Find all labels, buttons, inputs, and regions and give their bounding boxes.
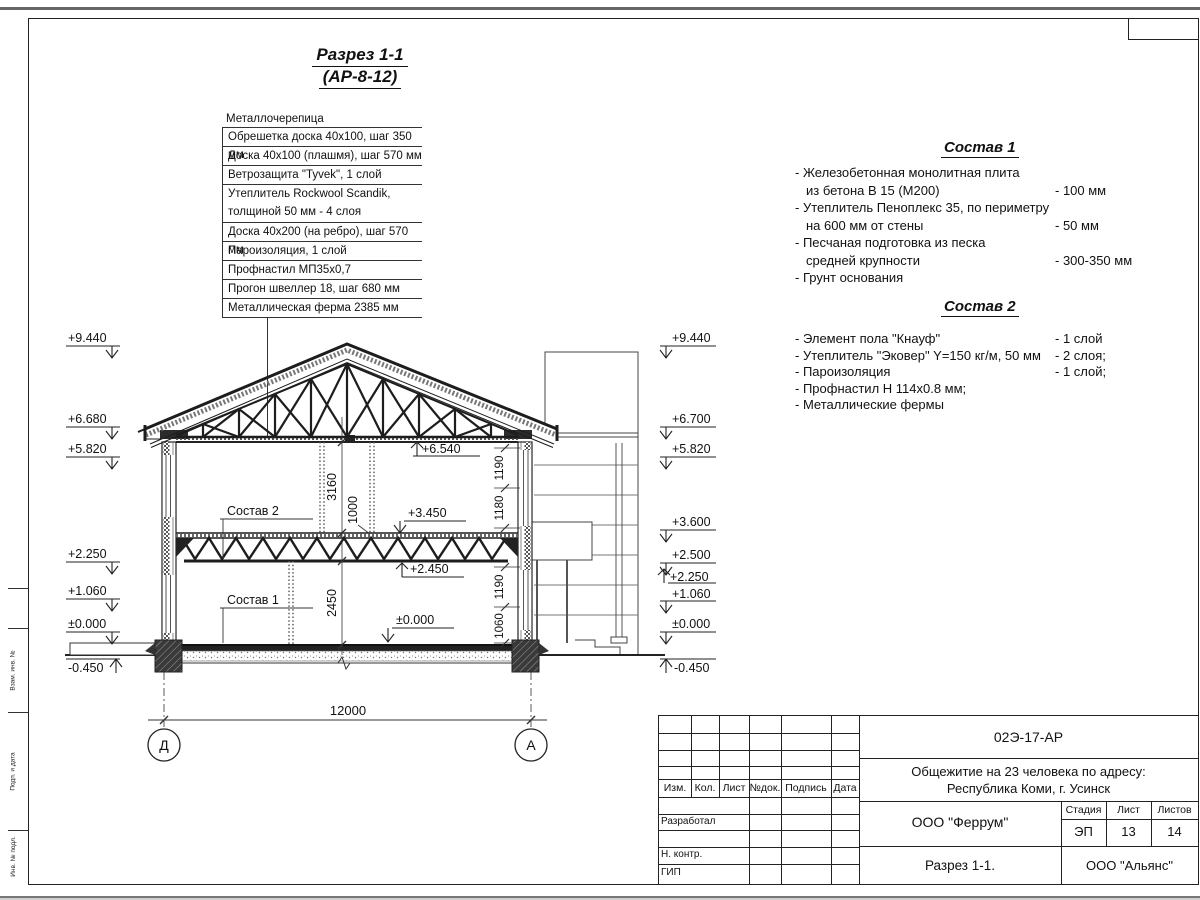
elev-truss-2450: +2.450 <box>410 562 449 576</box>
annex-elevation <box>530 352 665 655</box>
sostav2-item: - Элемент пола "Кнауф"- 1 слой <box>795 331 1147 348</box>
overall-dimension <box>148 672 547 727</box>
top-right-box <box>1128 18 1199 40</box>
stamp-col-data: Дата <box>831 782 859 794</box>
stamp-project-line1: Общежитие на 23 человека по адресу: <box>859 763 1198 780</box>
sostav2-item-value: - 1 слой; <box>1055 364 1147 381</box>
stamp-customer-org: ООО "Альянс" <box>1061 858 1198 873</box>
stamp-col-kol: Кол. <box>691 782 719 794</box>
stamp-col-podpis: Подпись <box>781 782 831 794</box>
sostav1-item-line1: - Железобетонная монолитная плита <box>795 164 1147 182</box>
stamp-project-line2: Республика Коми, г. Усинск <box>859 780 1198 797</box>
callout-item: Доска 40х100 (плашмя), шаг 570 мм <box>223 147 422 166</box>
sostav1-item-value: - 100 мм <box>1055 182 1147 200</box>
sostav2-item: - Утеплитель "Эковер" Y=150 кг/м, 50 мм-… <box>795 348 1147 365</box>
sostav1-item: - Грунт основания <box>795 269 1147 287</box>
axis-label-d: Д <box>159 737 169 753</box>
sostav2-title: Состав 2 <box>941 298 1019 317</box>
elev-left-9440: +9.440 <box>68 331 107 345</box>
elev-right-9440: +9.440 <box>672 331 711 345</box>
left-wall <box>162 442 176 645</box>
stamp-drawing-name: Разрез 1-1. <box>859 858 1061 873</box>
sostav2-item-text: - Профнастил Н 114х0.8 мм; <box>795 381 966 398</box>
sostav2-item-value: - 2 слоя; <box>1055 348 1147 365</box>
drawing-title: Разрез 1-1 (АР-8-12) <box>280 45 440 89</box>
dim-1000: 1000 <box>346 496 360 524</box>
drawing-title-line2: (АР-8-12) <box>319 67 402 89</box>
sostav2-item-value: - 1 слой <box>1055 331 1147 348</box>
left-platform <box>70 643 155 655</box>
stamp-role-gip: ГИП <box>661 867 749 878</box>
sostav1-item-value: - 300-350 мм <box>1055 252 1147 270</box>
sostav2-item-text: - Утеплитель "Эковер" Y=150 кг/м, 50 мм <box>795 348 1041 365</box>
callout-item: Прогон швеллер 18, шаг 680 мм <box>223 280 422 299</box>
sostav1-title: Состав 1 <box>941 139 1019 158</box>
callout-item: Пароизоляция, 1 слой <box>223 242 422 261</box>
callout-header: Металлочерепица <box>222 110 422 127</box>
drawing-sheet: { "drawing_title": { "line1": "Разрез 1-… <box>0 0 1200 900</box>
floor2-structure <box>176 533 518 561</box>
sostav1-item: - Утеплитель Пеноплекс 35, по периметру … <box>795 199 1147 234</box>
sostav2-ref-label: Состав 2 <box>227 504 279 518</box>
sostav2-item: - Металлические фермы <box>795 397 1147 414</box>
elev-left-6680: +6.680 <box>68 412 107 426</box>
elev-right-5820: +5.820 <box>672 442 711 456</box>
sostav1-item-line2: на 600 мм от стены <box>806 217 923 235</box>
dim-1180: 1180 <box>494 496 506 521</box>
stamp-col-izm: Изм. <box>659 782 691 794</box>
callout-item: Доска 40х200 (на ребро), шаг 570 мм <box>223 223 422 242</box>
stamp-stage-label: Стадия <box>1061 804 1106 816</box>
stamp-doc-code: 02Э-17-АР <box>859 729 1198 745</box>
floor-slab <box>155 645 539 669</box>
roof-layers-callout: Металлочерепица Обрешетка доска 40х100, … <box>222 110 422 318</box>
elev-left-1060: +1.060 <box>68 584 107 598</box>
sostav1-item-value: - 50 мм <box>1055 217 1147 235</box>
sostav2-item-text: - Элемент пола "Кнауф" <box>795 331 940 348</box>
elev-right-0000: ±0.000 <box>672 617 710 631</box>
stamp-sheets-value: 14 <box>1151 824 1198 839</box>
sostav1-item-line2: средней крупности <box>806 252 920 270</box>
axis-label-a: А <box>526 737 536 753</box>
sostav1-item-line2: из бетона В 15 (М200) <box>806 182 940 200</box>
title-block: Изм. Кол. Лист №док. Подпись Дата Разраб… <box>658 715 1199 885</box>
sostav1-item: - Песчаная подготовка из песка средней к… <box>795 234 1147 269</box>
margin-divider-1 <box>8 588 28 589</box>
margin-label-inv: Инв. № подл. <box>8 830 19 883</box>
elev-right-2500: +2.500 <box>672 548 711 562</box>
stamp-role-developer: Разработал <box>661 816 749 827</box>
callout-item: Ветрозащита "Tyvek", 1 слой <box>223 166 422 185</box>
stamp-stage-value: ЭП <box>1061 824 1106 839</box>
stamp-sheet-label: Лист <box>1106 804 1151 816</box>
elev-left-5820: +5.820 <box>68 442 107 456</box>
callout-item: Утеплитель Rockwool Scandik, толщиной 50… <box>223 185 422 223</box>
sostav1-item-line1: - Песчаная подготовка из песка <box>795 234 1147 252</box>
elev-right-6700: +6.700 <box>672 412 711 426</box>
dim-1060: 1060 <box>494 613 506 639</box>
axis-bubbles <box>148 729 547 761</box>
elev-right-2250: +2.250 <box>670 570 709 584</box>
stamp-col-ndok: №док. <box>749 782 781 794</box>
elev-left-m0450: -0.450 <box>68 661 103 675</box>
stamp-sheet-value: 13 <box>1106 824 1151 839</box>
callout-item: Профнастил МП35х0,7 <box>223 261 422 280</box>
dim-1190-upper: 1190 <box>494 456 506 481</box>
margin-label-vzam: Взам. инв. № <box>8 628 19 712</box>
dim-12000: 12000 <box>330 703 366 718</box>
callout-item: Обрешетка доска 40х100, шаг 350 мм <box>223 127 422 147</box>
sostav2-item: - Профнастил Н 114х0.8 мм; <box>795 381 1147 398</box>
callout-items: Обрешетка доска 40х100, шаг 350 мм Доска… <box>222 127 422 318</box>
elev-floor1-0000: ±0.000 <box>396 613 434 627</box>
sostav2-item-text: - Пароизоляция <box>795 364 890 381</box>
right-wall <box>518 442 532 645</box>
stamp-project-name: Общежитие на 23 человека по адресу: Респ… <box>859 763 1198 797</box>
margin-label-podp: Подп. и дата <box>8 712 19 830</box>
sostav1-item-line1: - Грунт основания <box>795 269 1147 287</box>
sostav1-item-line1: - Утеплитель Пеноплекс 35, по периметру <box>795 199 1147 217</box>
stamp-role-ncontr: Н. контр. <box>661 849 749 860</box>
drawing-title-line1: Разрез 1-1 <box>312 45 407 67</box>
elev-attic-6540: +6.540 <box>422 442 461 456</box>
sostav2-list: - Элемент пола "Кнауф"- 1 слой - Утеплит… <box>795 331 1147 414</box>
stamp-designer-org: ООО "Феррум" <box>859 814 1061 830</box>
sostav1-item: - Железобетонная монолитная плита из бет… <box>795 164 1147 199</box>
callout-item-line: Утеплитель Rockwool Scandik, <box>228 185 422 203</box>
elev-right-m0450: -0.450 <box>674 661 709 675</box>
elev-left-2250: +2.250 <box>68 547 107 561</box>
callout-item: Металлическая ферма 2385 мм <box>223 299 422 318</box>
stamp-col-list: Лист <box>719 782 749 794</box>
dim-2450: 2450 <box>325 589 339 617</box>
dim-3160: 3160 <box>325 473 339 501</box>
building-section-drawing: 3160 1000 2450 1190 1180 1190 1060 Соста… <box>60 325 720 770</box>
sostav1-ref-label: Состав 1 <box>227 593 279 607</box>
dim-1190-lower: 1190 <box>494 575 506 600</box>
elev-floor2-3450: +3.450 <box>408 506 447 520</box>
elev-left-0000: ±0.000 <box>68 617 106 631</box>
stamp-sheets-label: Листов <box>1151 804 1198 816</box>
elev-right-3600: +3.600 <box>672 515 711 529</box>
elev-right-1060: +1.060 <box>672 587 711 601</box>
sostav2-item-text: - Металлические фермы <box>795 397 944 414</box>
sostav2-item: - Пароизоляция- 1 слой; <box>795 364 1147 381</box>
sostav1-list: - Железобетонная монолитная плита из бет… <box>795 164 1147 287</box>
sheet-top-edge <box>0 7 1200 10</box>
callout-item-line: толщиной 50 мм - 4 слоя <box>228 203 422 221</box>
